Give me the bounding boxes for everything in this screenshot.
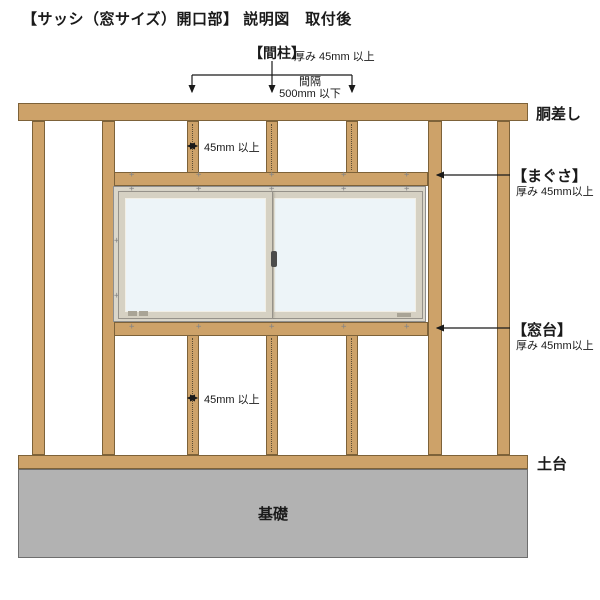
stud-left-outer: [32, 121, 45, 455]
lintel-spec: 厚み 45mm以上: [516, 183, 594, 199]
spacing-line1: 間隔: [262, 76, 358, 88]
stud-right-outer: [497, 121, 510, 455]
windowsill-spec: 厚み 45mm以上: [516, 337, 594, 353]
stud-spacing-note: 間隔 500mm 以下: [262, 76, 358, 100]
girder-label: 胴差し: [536, 103, 581, 124]
window-sash-right[interactable]: [268, 192, 422, 318]
mabashira-upper-2: [266, 121, 278, 173]
glass-pane-right: [274, 198, 416, 312]
nail-mark-icon: +: [341, 324, 346, 330]
stud-width-note-upper: 45mm 以上: [204, 139, 260, 155]
weep-slot: [397, 313, 411, 317]
foundation-label: 基礎: [258, 503, 288, 524]
sliding-window: [113, 186, 426, 322]
base-label: 土台: [537, 453, 567, 474]
nail-mark-icon: +: [404, 172, 409, 178]
nail-mark-icon: +: [341, 172, 346, 178]
nail-mark-icon: +: [129, 172, 134, 178]
spacing-line2: 500mm 以下: [262, 88, 358, 100]
nail-mark-icon: +: [196, 324, 201, 330]
mabashira-upper-1: [187, 121, 199, 173]
crescent-lock-icon[interactable]: [271, 251, 277, 267]
stud-right-of-window: [428, 121, 442, 455]
glass-pane-left: [125, 198, 266, 312]
girder-beam: [18, 103, 528, 121]
window-sash-left[interactable]: [119, 192, 272, 318]
weep-slot: [139, 311, 148, 316]
stud-width-note-lower: 45mm 以上: [204, 391, 260, 407]
mabashira-upper-3: [346, 121, 358, 173]
mabashira-spec: 厚み 45mm 以上: [294, 48, 375, 64]
mabashira-lower-2: [266, 335, 278, 455]
nail-mark-icon: +: [404, 324, 409, 330]
nail-mark-icon: +: [269, 172, 274, 178]
nail-mark-icon: +: [196, 172, 201, 178]
mabashira-lower-3: [346, 335, 358, 455]
nail-mark-icon: +: [129, 324, 134, 330]
weep-slot: [128, 311, 137, 316]
page-title: 【サッシ（窓サイズ）開口部】 説明図 取付後: [22, 8, 352, 29]
mabashira-lower-1: [187, 335, 199, 455]
base-beam: [18, 455, 528, 469]
nail-mark-icon: +: [269, 324, 274, 330]
foundation-block: 基礎: [18, 469, 528, 558]
diagram-canvas: 【サッシ（窓サイズ）開口部】 説明図 取付後 基礎 + + + + + + + …: [0, 0, 600, 600]
